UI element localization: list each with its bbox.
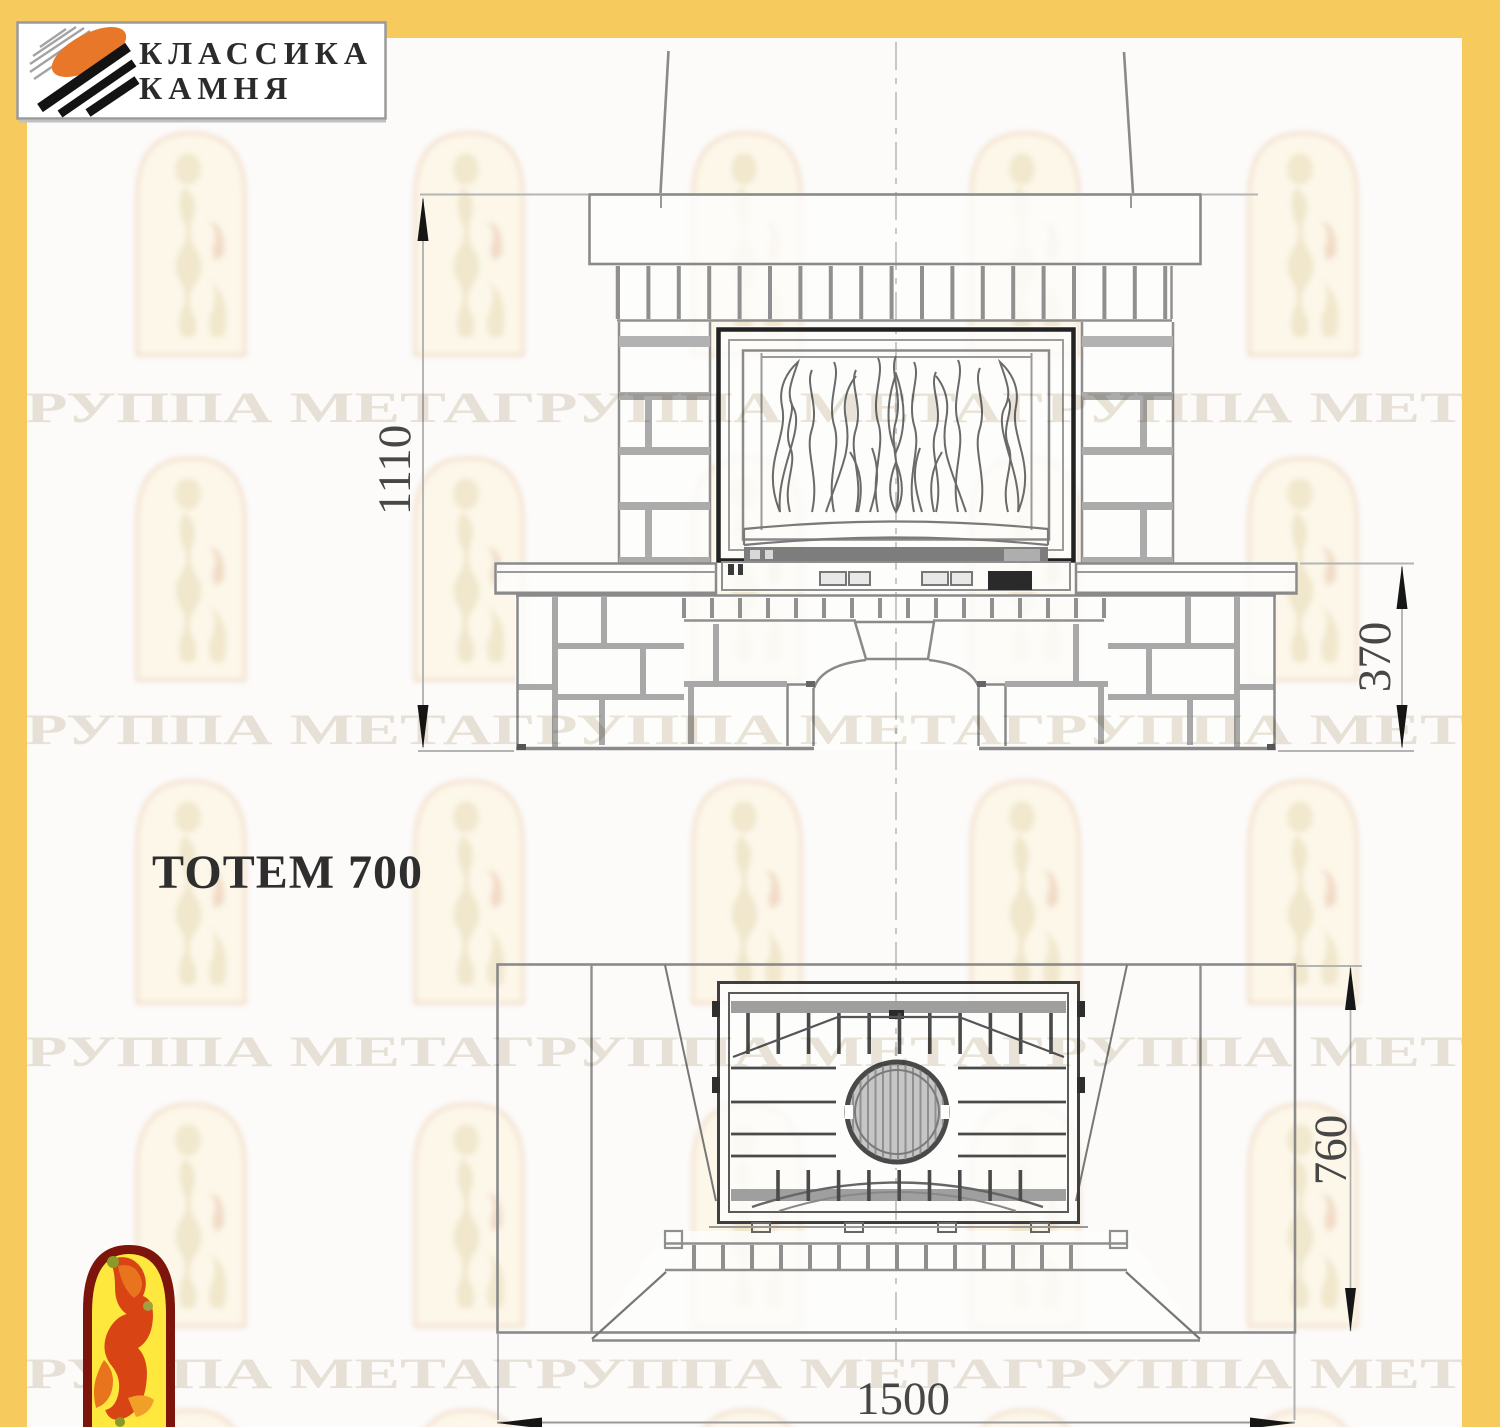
svg-text:760: 760 [1305, 1115, 1357, 1186]
svg-text:370: 370 [1349, 622, 1401, 693]
svg-text:ТОТЕМ 700: ТОТЕМ 700 [152, 846, 423, 899]
svg-text:ГРУППА МЕТАГРУППА МЕТАГРУППА М: ГРУППА МЕТАГРУППА МЕТАГРУППА МЕТА [0, 707, 1500, 754]
svg-text:ГРУППА МЕТАГРУППА МЕТАГРУППА М: ГРУППА МЕТАГРУППА МЕТАГРУППА МЕТА [0, 1351, 1500, 1398]
svg-text:1110: 1110 [369, 425, 421, 516]
svg-text:КАМНЯ: КАМНЯ [139, 70, 294, 106]
svg-text:КЛАССИКА: КЛАССИКА [139, 35, 373, 71]
svg-text:ГРУППА МЕТАГРУППА МЕТАГРУППА М: ГРУППА МЕТАГРУППА МЕТАГРУППА МЕТА [0, 385, 1500, 432]
svg-text:ГРУППА МЕТАГРУППА МЕТАГРУППА М: ГРУППА МЕТАГРУППА МЕТАГРУППА МЕТА [0, 1029, 1500, 1076]
